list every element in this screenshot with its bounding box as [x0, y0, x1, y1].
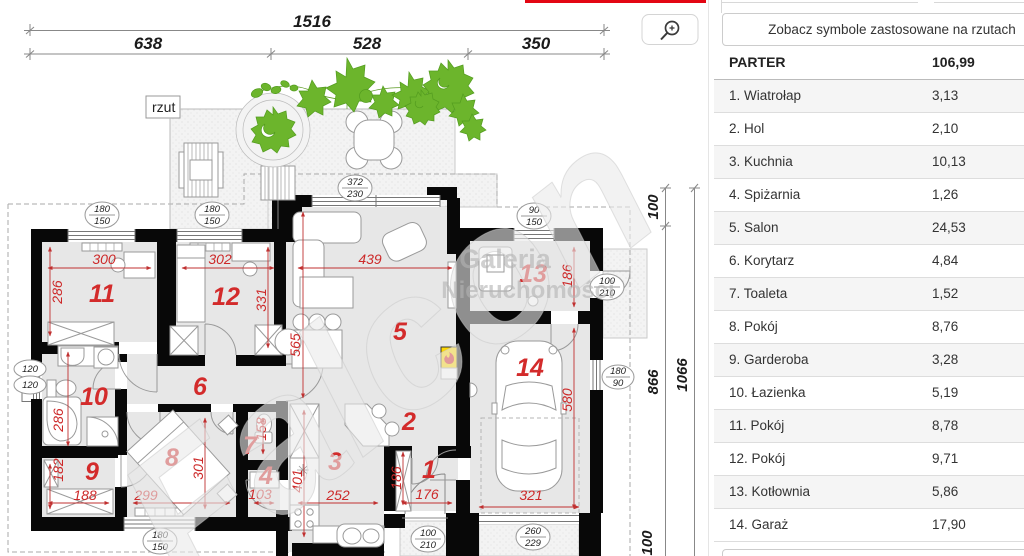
svg-text:180: 180	[610, 366, 627, 377]
svg-text:638: 638	[134, 34, 163, 53]
svg-text:Galeria: Galeria	[459, 244, 552, 274]
svg-text:120: 120	[22, 380, 39, 391]
svg-text:1066: 1066	[674, 358, 691, 392]
svg-text:100: 100	[639, 530, 656, 556]
svg-text:866: 866	[645, 369, 662, 395]
svg-text:580: 580	[559, 388, 575, 412]
svg-text:150: 150	[204, 216, 221, 227]
svg-text:210: 210	[419, 540, 437, 551]
svg-text:90: 90	[613, 378, 624, 389]
svg-text:180: 180	[204, 204, 221, 215]
svg-text:1516: 1516	[293, 12, 331, 31]
svg-text:180: 180	[94, 204, 111, 215]
svg-text:100: 100	[420, 528, 437, 539]
svg-text:302: 302	[208, 251, 232, 267]
svg-text:Nieruchomości: Nieruchomości	[441, 277, 614, 304]
svg-text:176: 176	[415, 486, 439, 502]
svg-text:rzut: rzut	[152, 99, 175, 115]
svg-text:188: 188	[73, 487, 97, 503]
svg-text:331: 331	[253, 288, 269, 311]
svg-text:350: 350	[522, 34, 551, 53]
svg-text:120: 120	[22, 364, 39, 375]
svg-text:528: 528	[353, 34, 382, 53]
svg-text:12: 12	[212, 283, 240, 311]
svg-text:150: 150	[94, 216, 111, 227]
svg-text:182: 182	[50, 458, 66, 482]
svg-text:260: 260	[524, 526, 542, 537]
svg-text:321: 321	[519, 487, 542, 503]
svg-text:10: 10	[80, 383, 108, 411]
svg-text:230: 230	[346, 189, 364, 200]
svg-text:372: 372	[347, 177, 364, 188]
svg-text:286: 286	[49, 280, 65, 305]
svg-text:229: 229	[524, 538, 542, 549]
svg-text:11: 11	[89, 280, 115, 308]
svg-text:300: 300	[92, 251, 116, 267]
svg-text:286: 286	[50, 408, 66, 433]
